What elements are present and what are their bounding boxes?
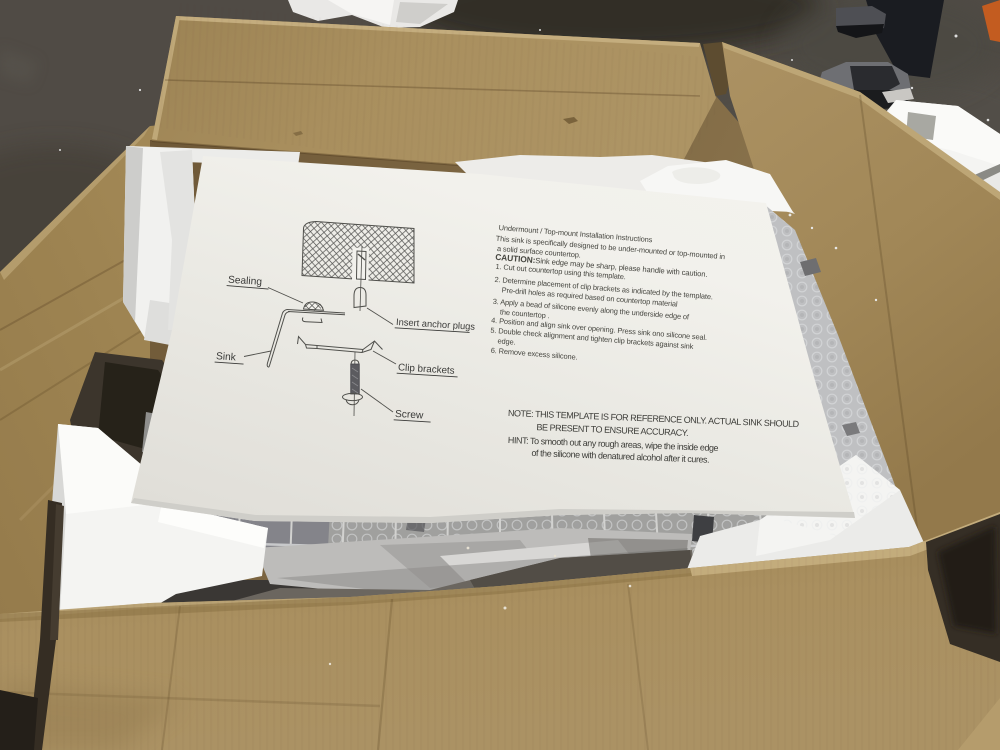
svg-text:Sink: Sink — [216, 351, 237, 363]
svg-text:edge.: edge. — [497, 336, 516, 346]
